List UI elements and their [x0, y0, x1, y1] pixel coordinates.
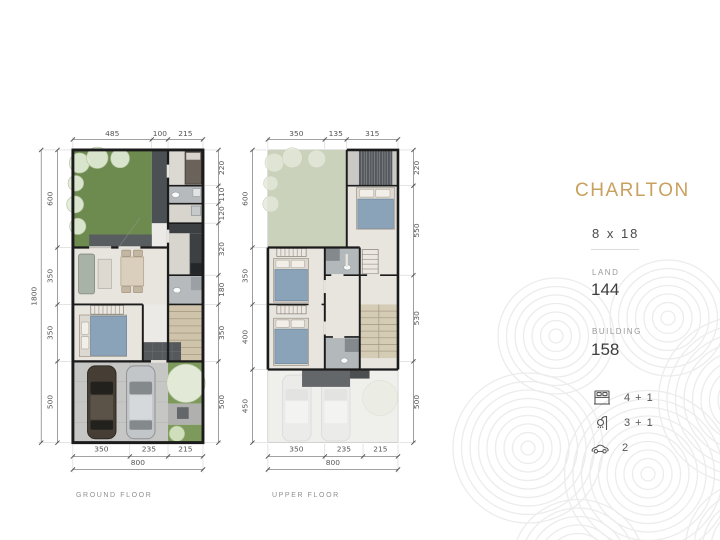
dimension-label: 450: [241, 399, 250, 414]
dimension-label: 350: [241, 269, 250, 284]
dimension-label: 220: [412, 160, 421, 175]
building-label: BUILDING: [592, 327, 642, 336]
dimension-label: 235: [337, 445, 352, 454]
dimension-label: 485: [105, 129, 120, 138]
dimension-label: 600: [46, 191, 55, 206]
upper-floor-drawing: [263, 148, 398, 443]
building-value: 158: [591, 340, 619, 360]
dimension-label: 315: [365, 129, 380, 138]
dimension-label: 350: [289, 129, 304, 138]
upper-floor-plan: 350 135 315 600 350 400 450 220 550 530 …: [224, 127, 424, 477]
land-label: LAND: [592, 268, 619, 277]
dimension-label: 800: [131, 458, 146, 467]
dimension-label: 400: [241, 330, 250, 345]
divider: [591, 249, 639, 250]
bed-icon: [592, 389, 612, 407]
bathroom-spec-row: 3 + 1: [592, 414, 654, 432]
dimension-label: 215: [178, 129, 193, 138]
car-dark: [88, 366, 116, 439]
land-value: 144: [591, 280, 619, 300]
bedroom-spec-row: 4 + 1: [592, 389, 654, 407]
dimension-label: 550: [412, 223, 421, 238]
bed: [357, 188, 395, 229]
shower-icon: [592, 414, 612, 432]
dimension-label: 215: [178, 445, 193, 454]
dimension-label: 135: [329, 129, 344, 138]
dimension-label: 1800: [29, 287, 38, 306]
carport-count: 2: [622, 442, 629, 454]
upper-floor-label: UPPER FLOOR: [272, 492, 340, 499]
dimension-label: 215: [373, 445, 388, 454]
dimension-label: 800: [326, 458, 341, 467]
dimension-label: 500: [46, 395, 55, 410]
car-silver: [127, 366, 155, 439]
lot-size: 8 x 18: [592, 226, 639, 241]
dimension-label: 530: [412, 311, 421, 326]
balcony: [302, 370, 350, 387]
bedroom-count: 4 + 1: [624, 392, 654, 404]
bed: [79, 315, 126, 356]
dimension-label: 235: [142, 445, 157, 454]
carport-spec-row: 2: [590, 439, 629, 457]
car-icon: [590, 439, 610, 457]
ground-floor-label: GROUND FLOOR: [76, 492, 152, 499]
brochure-page: 485 100 215 600 350 350 500 1800 220 110…: [0, 0, 720, 540]
dimension-label: 350: [289, 445, 304, 454]
dimension-label: 100: [153, 129, 168, 138]
dimension-label: 500: [412, 395, 421, 410]
project-title: CHARLTON: [575, 180, 690, 202]
bed: [274, 318, 309, 365]
bathroom-count: 3 + 1: [624, 417, 654, 429]
ground-floor-drawing: [67, 147, 205, 443]
dimension-label: 600: [241, 191, 250, 206]
dimension-label: 350: [94, 445, 109, 454]
bed: [274, 259, 309, 303]
dimension-label: 350: [46, 269, 55, 284]
dimension-label: 350: [46, 326, 55, 341]
wardrobe: [91, 305, 124, 314]
ground-floor-plan: 485 100 215 600 350 350 500 1800 220 110…: [29, 127, 229, 477]
